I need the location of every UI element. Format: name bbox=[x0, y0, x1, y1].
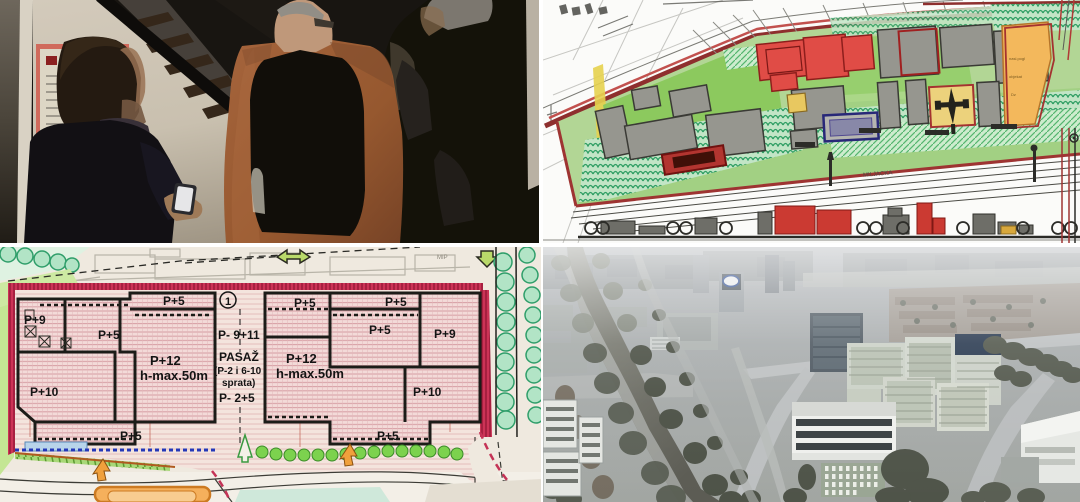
svg-text:P+10: P+10 bbox=[30, 385, 59, 399]
svg-text:Dz: Dz bbox=[1011, 92, 1016, 97]
svg-text:nasl.pogl: nasl.pogl bbox=[1009, 56, 1025, 61]
svg-text:P+5: P+5 bbox=[98, 328, 120, 342]
svg-text:(P-2 i 6-10: (P-2 i 6-10 bbox=[214, 366, 262, 377]
svg-text:P- 2+5: P- 2+5 bbox=[219, 391, 255, 405]
svg-text:PASAŽ: PASAŽ bbox=[219, 349, 259, 364]
svg-text:sprata): sprata) bbox=[222, 378, 255, 389]
svg-text:P+12: P+12 bbox=[150, 353, 181, 368]
svg-text:MIP: MIP bbox=[437, 255, 448, 261]
svg-text:P+10: P+10 bbox=[413, 385, 442, 399]
svg-text:P+5: P+5 bbox=[369, 323, 391, 337]
svg-text:1: 1 bbox=[225, 296, 231, 308]
svg-text:P+5: P+5 bbox=[163, 294, 185, 308]
svg-text:P+9: P+9 bbox=[24, 313, 46, 327]
svg-text:P- 9+11: P- 9+11 bbox=[218, 328, 260, 342]
svg-text:P+5: P+5 bbox=[385, 295, 407, 309]
svg-text:P+5: P+5 bbox=[294, 296, 316, 310]
svg-text:h-max.50m: h-max.50m bbox=[140, 368, 208, 383]
svg-text:P+5: P+5 bbox=[377, 429, 399, 443]
svg-text:P+5: P+5 bbox=[120, 429, 142, 443]
svg-text:P+12: P+12 bbox=[286, 351, 317, 366]
svg-text:objekat: objekat bbox=[1009, 74, 1023, 79]
svg-text:h-max.50m: h-max.50m bbox=[276, 366, 344, 381]
svg-text:P+9: P+9 bbox=[434, 327, 456, 341]
